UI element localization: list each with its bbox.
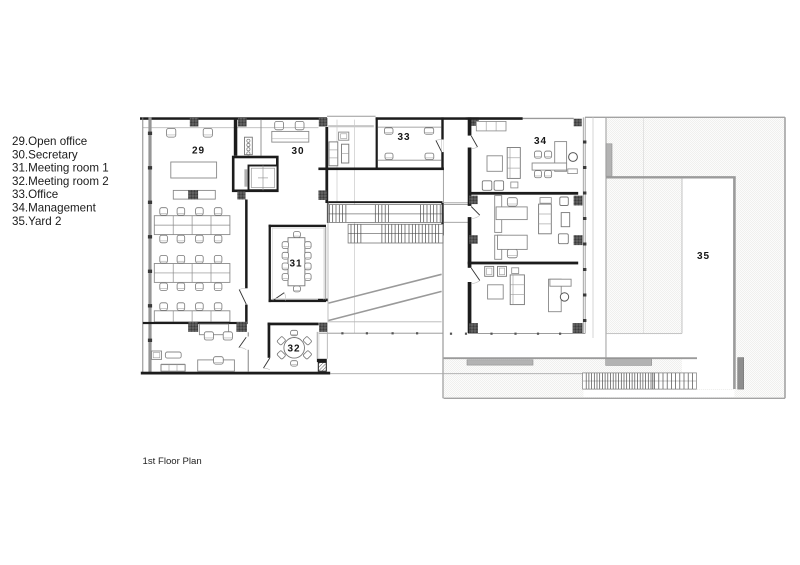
svg-text:31: 31 bbox=[290, 259, 303, 270]
svg-text:31.Meeting room 1: 31.Meeting room 1 bbox=[12, 162, 109, 175]
svg-text:30: 30 bbox=[292, 146, 305, 157]
svg-text:34.Management: 34.Management bbox=[12, 202, 97, 215]
svg-text:35.Yard 2: 35.Yard 2 bbox=[12, 215, 61, 228]
svg-text:29: 29 bbox=[192, 145, 205, 156]
svg-text:33.Office: 33.Office bbox=[12, 188, 58, 201]
svg-text:35: 35 bbox=[697, 251, 710, 262]
svg-text:32: 32 bbox=[288, 344, 301, 355]
svg-text:32.Meeting room 2: 32.Meeting room 2 bbox=[12, 175, 109, 188]
svg-text:1st Floor Plan: 1st Floor Plan bbox=[143, 456, 202, 467]
svg-text:34: 34 bbox=[534, 136, 547, 147]
svg-text:29.Open office: 29.Open office bbox=[12, 135, 87, 148]
svg-text:33: 33 bbox=[398, 132, 411, 143]
svg-text:30.Secretary: 30.Secretary bbox=[12, 148, 78, 161]
